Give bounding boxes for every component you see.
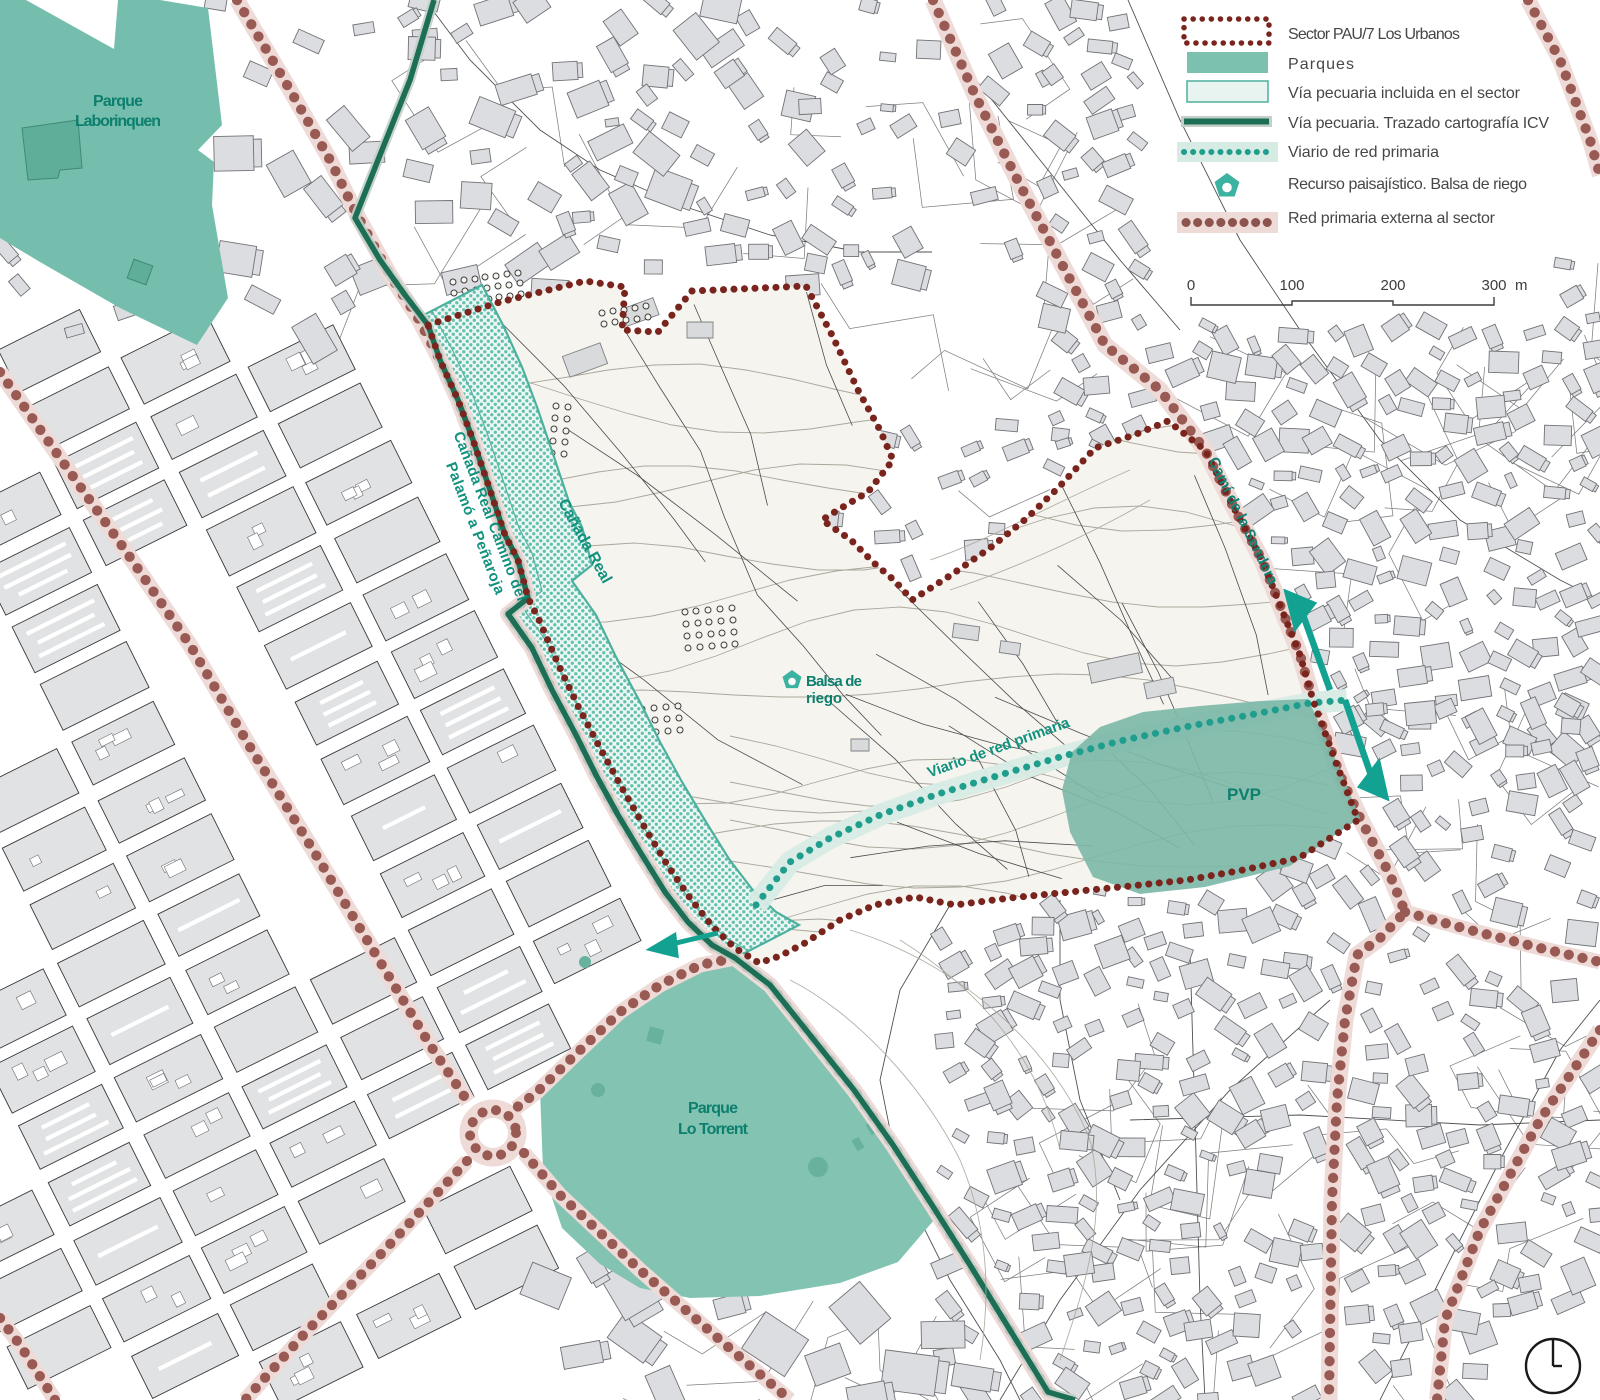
svg-text:riego: riego	[806, 690, 842, 707]
svg-text:Sector PAU/7 Los Urbanos: Sector PAU/7 Los Urbanos	[1288, 26, 1460, 43]
svg-text:m: m	[1515, 277, 1528, 294]
svg-text:0: 0	[1187, 277, 1195, 294]
svg-text:PVP: PVP	[1227, 785, 1261, 804]
svg-text:300: 300	[1481, 277, 1506, 294]
svg-text:100: 100	[1279, 277, 1304, 294]
svg-text:Viario de red primaria: Viario de red primaria	[1288, 144, 1439, 161]
svg-text:Balsa de: Balsa de	[806, 673, 862, 690]
svg-text:Parque: Parque	[688, 1100, 738, 1117]
svg-text:Recurso paisajístico. Balsa de: Recurso paisajístico. Balsa de riego	[1288, 176, 1527, 193]
svg-text:Red primaria externa al sector: Red primaria externa al sector	[1288, 210, 1496, 227]
svg-text:Vía pecuaria. Trazado cartogra: Vía pecuaria. Trazado cartografía ICV	[1288, 115, 1549, 132]
svg-text:200: 200	[1380, 277, 1405, 294]
svg-text:Vía pecuaria incluida en el se: Vía pecuaria incluida en el sector	[1288, 85, 1521, 102]
svg-text:Lo Torrent: Lo Torrent	[678, 1121, 749, 1138]
svg-text:Parque: Parque	[93, 93, 143, 110]
svg-text:Laborinquen: Laborinquen	[75, 113, 161, 130]
svg-text:Parques: Parques	[1288, 56, 1354, 73]
